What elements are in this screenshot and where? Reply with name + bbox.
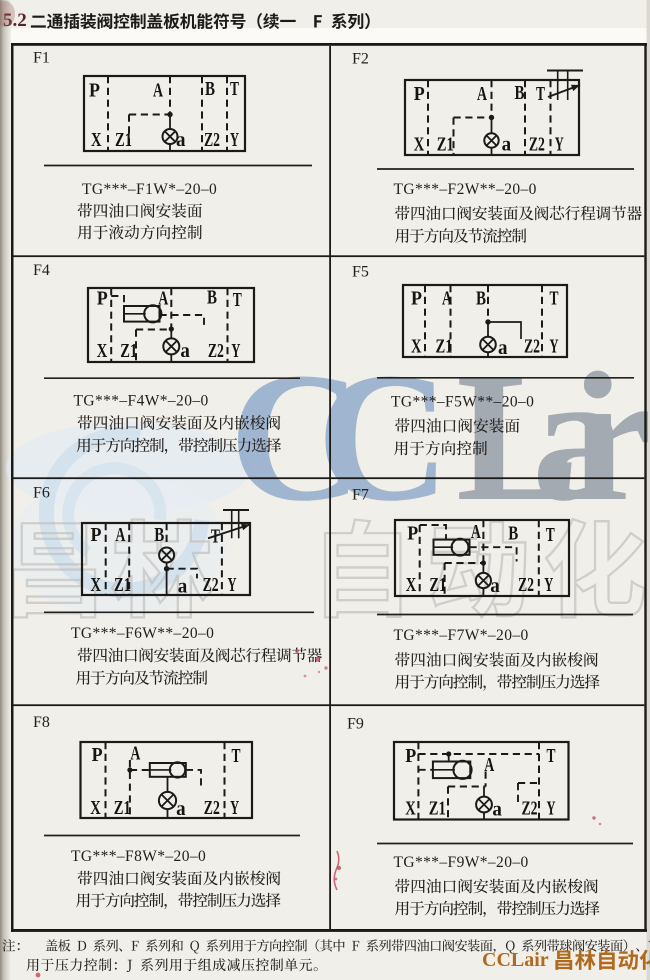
svg-text:Z1: Z1 bbox=[429, 574, 446, 596]
svg-text:A: A bbox=[153, 80, 163, 102]
svg-text:X: X bbox=[411, 336, 422, 358]
svg-text:P: P bbox=[89, 80, 100, 102]
svg-text:Z2: Z2 bbox=[518, 574, 534, 596]
svg-text:Z2: Z2 bbox=[204, 129, 220, 151]
svg-text:Y: Y bbox=[228, 574, 237, 596]
svg-text:A: A bbox=[115, 524, 125, 546]
svg-text:Y: Y bbox=[544, 574, 553, 596]
svg-text:F7: F7 bbox=[352, 487, 369, 504]
svg-text:A: A bbox=[442, 288, 452, 310]
svg-text:P: P bbox=[414, 83, 425, 105]
svg-text:T: T bbox=[547, 745, 556, 767]
svg-text:P: P bbox=[411, 288, 422, 310]
svg-text:F6: F6 bbox=[33, 485, 50, 502]
svg-text:Z1: Z1 bbox=[114, 574, 131, 596]
svg-text:a: a bbox=[178, 576, 188, 598]
svg-text:B: B bbox=[515, 82, 525, 104]
svg-text:A: A bbox=[130, 743, 140, 765]
svg-text:F8: F8 bbox=[33, 714, 50, 731]
svg-text:Z2: Z2 bbox=[203, 574, 219, 596]
svg-text:T: T bbox=[550, 288, 559, 310]
svg-text:TG***–F1W*–20–0: TG***–F1W*–20–0 bbox=[82, 181, 217, 198]
svg-text:X: X bbox=[90, 797, 101, 819]
svg-text:Y: Y bbox=[230, 797, 239, 819]
svg-text:B: B bbox=[508, 523, 518, 545]
svg-text:Z1: Z1 bbox=[120, 340, 137, 362]
svg-text:A: A bbox=[158, 288, 168, 310]
svg-text:A: A bbox=[484, 754, 494, 776]
svg-text:Z1: Z1 bbox=[437, 134, 454, 156]
svg-text:Z1: Z1 bbox=[115, 129, 132, 151]
svg-text:a: a bbox=[490, 575, 500, 597]
svg-text:Z2: Z2 bbox=[529, 134, 545, 156]
svg-text:Y: Y bbox=[555, 134, 564, 156]
svg-text:air: air bbox=[532, 335, 650, 540]
svg-text:Y: Y bbox=[547, 798, 556, 820]
svg-text:TG***–F6W**–20–0: TG***–F6W**–20–0 bbox=[71, 625, 214, 642]
svg-text:X: X bbox=[91, 574, 102, 596]
svg-text:Y: Y bbox=[230, 129, 239, 151]
svg-text:F9: F9 bbox=[347, 716, 364, 733]
svg-text:P: P bbox=[407, 523, 418, 545]
svg-text:P: P bbox=[92, 744, 103, 766]
svg-text:T: T bbox=[536, 83, 545, 105]
svg-text:A: A bbox=[471, 521, 481, 543]
svg-text:F4: F4 bbox=[33, 262, 50, 279]
svg-text:T: T bbox=[230, 78, 239, 100]
svg-text:a: a bbox=[502, 134, 512, 156]
svg-text:CCLair: CCLair bbox=[482, 949, 549, 971]
svg-text:a: a bbox=[176, 129, 186, 151]
svg-text:T: T bbox=[233, 289, 242, 311]
svg-text:P: P bbox=[97, 288, 108, 310]
svg-text:TG***–F2W**–20–0: TG***–F2W**–20–0 bbox=[394, 181, 537, 198]
svg-text:CC: CC bbox=[229, 335, 450, 540]
svg-text:TG***–F5W**–20–0: TG***–F5W**–20–0 bbox=[391, 394, 534, 411]
svg-text:F1: F1 bbox=[33, 50, 50, 67]
svg-text:Z2: Z2 bbox=[204, 797, 220, 819]
svg-text:X: X bbox=[414, 134, 425, 156]
svg-text:B: B bbox=[207, 287, 217, 309]
svg-text:Z1: Z1 bbox=[429, 798, 446, 820]
svg-text:B: B bbox=[205, 78, 215, 100]
svg-text:TG***–F8W*–20–0: TG***–F8W*–20–0 bbox=[71, 848, 206, 865]
svg-text:X: X bbox=[91, 129, 102, 151]
svg-text:X: X bbox=[405, 798, 416, 820]
svg-text:Y: Y bbox=[550, 336, 559, 358]
svg-text:Z1: Z1 bbox=[114, 797, 131, 819]
svg-text:TG***–F4W*–20–0: TG***–F4W*–20–0 bbox=[74, 393, 209, 410]
svg-text:P: P bbox=[405, 745, 416, 767]
svg-text:a: a bbox=[492, 799, 502, 821]
svg-text:TG***–F7W*–20–0: TG***–F7W*–20–0 bbox=[394, 627, 529, 644]
svg-text:Y: Y bbox=[231, 340, 240, 362]
svg-text:F5: F5 bbox=[352, 264, 369, 281]
svg-text:Z2: Z2 bbox=[522, 798, 538, 820]
svg-text:F2: F2 bbox=[352, 51, 369, 68]
svg-text:A: A bbox=[477, 83, 487, 105]
svg-text:B: B bbox=[476, 288, 486, 310]
svg-text:X: X bbox=[406, 574, 417, 596]
svg-text:Z2: Z2 bbox=[524, 336, 540, 358]
svg-text:T: T bbox=[232, 745, 241, 767]
svg-text:a: a bbox=[498, 337, 508, 359]
svg-text:Z1: Z1 bbox=[436, 336, 453, 358]
svg-text:a: a bbox=[176, 798, 186, 820]
svg-text:T: T bbox=[546, 524, 555, 546]
svg-text:B: B bbox=[154, 524, 164, 546]
svg-text:X: X bbox=[97, 340, 108, 362]
svg-text:Z2: Z2 bbox=[208, 340, 224, 362]
svg-text:a: a bbox=[180, 340, 190, 362]
svg-text:P: P bbox=[91, 524, 102, 546]
svg-text:TG***–F9W*–20–0: TG***–F9W*–20–0 bbox=[394, 854, 529, 871]
